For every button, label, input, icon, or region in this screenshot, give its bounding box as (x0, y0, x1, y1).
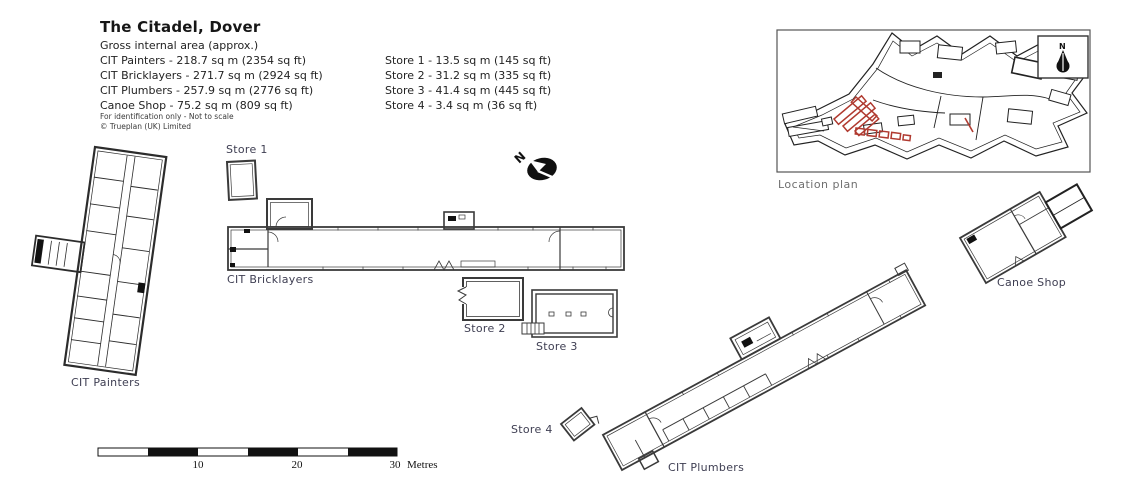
location-north-icon: N (1038, 36, 1088, 78)
cit-plumbers-plan (591, 248, 931, 479)
store2-label: Store 2 (464, 322, 506, 335)
store2-plan (458, 278, 523, 320)
north-letter: N (512, 149, 529, 166)
scale-tick-30: 30 (390, 459, 401, 471)
store3-label: Store 3 (536, 340, 578, 353)
store1-label: Store 1 (226, 143, 268, 156)
north-arrow-icon: N (512, 149, 560, 183)
store1-plan (227, 161, 257, 200)
store4-plan (561, 404, 601, 442)
cit-plumbers-label: CIT Plumbers (668, 461, 744, 474)
scale-tick-10: 10 (193, 459, 204, 471)
cit-painters-plan (19, 141, 166, 375)
store3-plan (522, 290, 617, 337)
canoe-shop-plan (960, 174, 1097, 283)
cit-bricklayers-label: CIT Bricklayers (227, 273, 314, 286)
north-letter: N (1059, 42, 1066, 51)
scale-unit-label: Metres (407, 459, 438, 471)
scale-bar (98, 448, 397, 456)
store4-label: Store 4 (511, 423, 553, 436)
cit-painters-label: CIT Painters (71, 376, 140, 389)
site-plan-canvas: N (0, 0, 1140, 500)
location-plan-label: Location plan (778, 178, 858, 191)
canoe-shop-label: Canoe Shop (997, 276, 1066, 289)
cit-bricklayers-plan (228, 199, 624, 270)
location-plan: N (777, 30, 1090, 172)
floorplan-sheet: The Citadel, Dover Gross internal area (… (0, 0, 1140, 500)
scale-tick-20: 20 (292, 459, 303, 471)
